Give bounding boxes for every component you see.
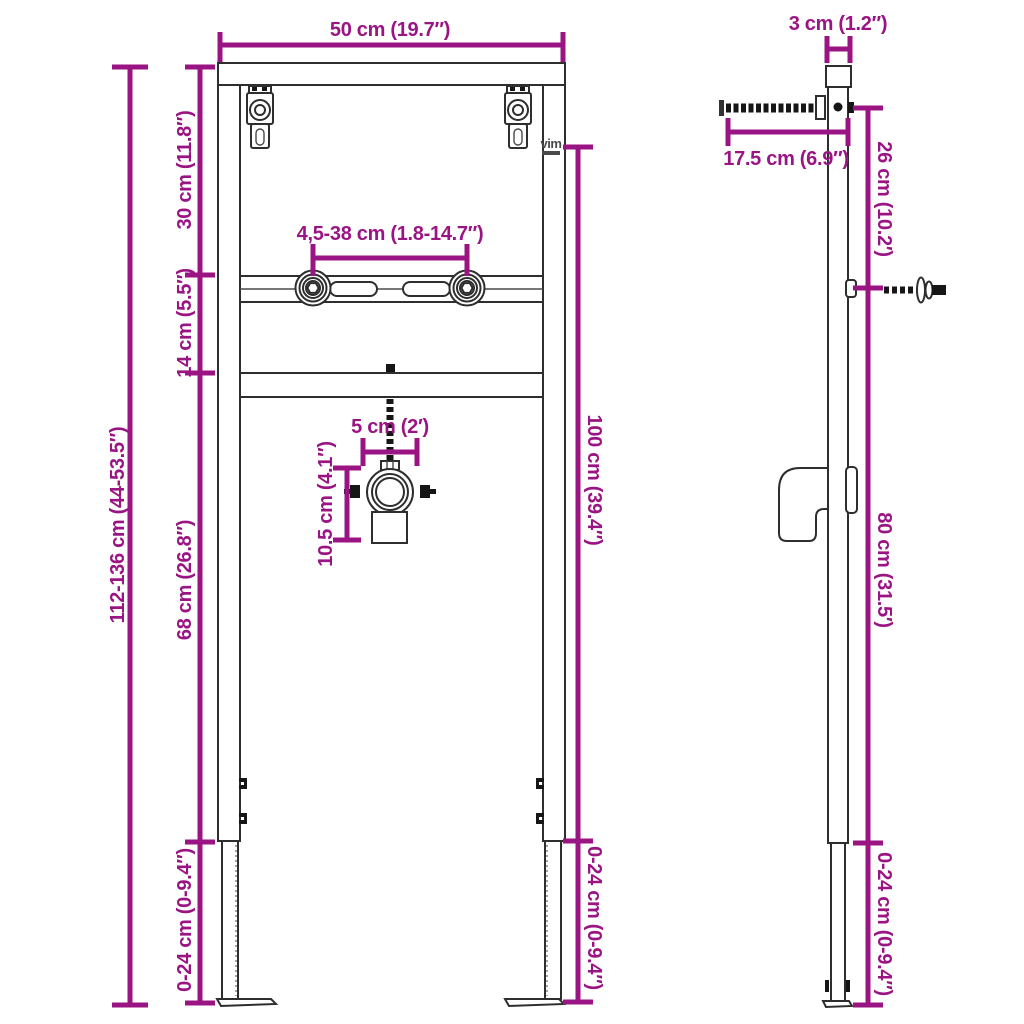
dimension-labels: 50 cm (19.7″) 4,5-38 cm (1.8-14.7″) 5 cm…: [107, 13, 895, 996]
label-anchor-drop: 26 cm (10.2′): [873, 141, 895, 256]
label-drain-offset: 5 cm (2′): [351, 416, 429, 438]
leg-side: [823, 843, 852, 1007]
watermark-text: vim: [541, 136, 562, 151]
drain-outlet: [372, 512, 407, 543]
drain-trap: [367, 469, 413, 515]
left-post: [218, 85, 240, 841]
label-leg-extension-left: 0-24 cm (0-9.4″): [174, 848, 196, 992]
legs-front: [217, 778, 564, 1006]
side-foot: [823, 1001, 852, 1007]
label-leg-extension-front: 0-24 cm (0-9.4″): [583, 846, 605, 990]
brand-watermark: vim: [541, 136, 562, 155]
crossbar: [240, 364, 543, 397]
dimension-lines: [112, 32, 883, 1005]
side-view: [719, 66, 946, 1007]
label-trap-drop: 10.5 cm (4.1″): [315, 441, 337, 566]
right-post: [543, 85, 565, 841]
label-outlet-height: 80 cm (31.5′): [873, 512, 895, 627]
wall-anchor-rod: [719, 96, 854, 119]
mounting-rail: [240, 271, 543, 306]
label-anchor-length: 17.5 cm (6.9″): [723, 148, 848, 170]
wall-bracket-right: [505, 86, 531, 148]
left-foot: [217, 999, 276, 1006]
label-frame-height: 100 cm (39.4″): [583, 414, 605, 545]
label-top-section: 30 cm (11.8″): [174, 110, 196, 229]
post-hole: [834, 103, 843, 112]
label-lower-section: 68 cm (26.8″): [174, 520, 196, 640]
label-frame-width: 50 cm (19.7″): [330, 19, 450, 41]
label-total-height: 112-136 cm (44-53.5″): [107, 427, 129, 624]
label-bracket-range: 4,5-38 cm (1.8-14.7″): [297, 223, 484, 245]
wall-bracket-left: [247, 86, 273, 148]
front-view: vim: [217, 63, 565, 1006]
right-foot: [505, 999, 564, 1006]
top-bar: [218, 63, 565, 85]
diagram-canvas: vim: [0, 0, 1024, 1024]
side-post: [828, 87, 848, 843]
dimension-diagram: vim: [0, 0, 1024, 1024]
label-rail-section: 14 cm (5.5″): [174, 268, 196, 377]
label-frame-depth: 3 cm (1.2″): [789, 13, 888, 35]
drain-elbow: [779, 467, 857, 541]
label-leg-extension-side: 0-24 cm (0-9.4″): [873, 852, 895, 996]
drain-socket: [846, 467, 857, 513]
side-top-bracket: [826, 66, 851, 87]
